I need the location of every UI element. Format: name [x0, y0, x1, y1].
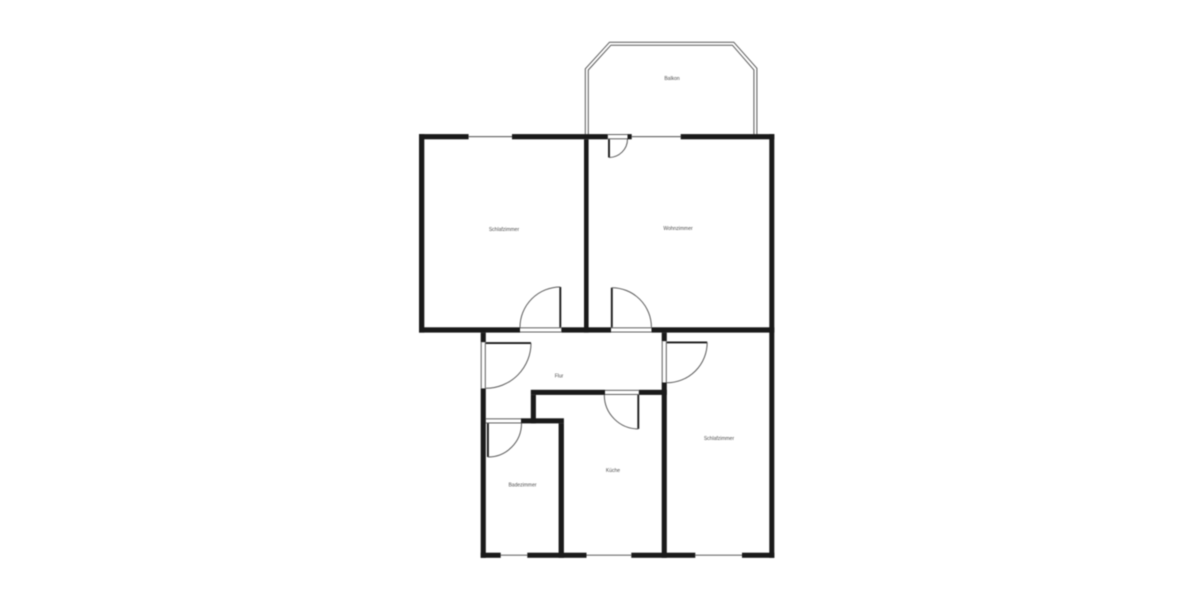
svg-text:Badezimmer: Badezimmer — [508, 483, 536, 489]
svg-text:Schlafzimmer: Schlafzimmer — [489, 227, 520, 233]
svg-text:Flur: Flur — [555, 374, 564, 380]
svg-text:Küche: Küche — [606, 468, 620, 474]
svg-text:Schlafzimmer: Schlafzimmer — [704, 436, 735, 442]
svg-text:Wohnzimmer: Wohnzimmer — [663, 226, 693, 232]
svg-text:Balkon: Balkon — [664, 76, 680, 82]
